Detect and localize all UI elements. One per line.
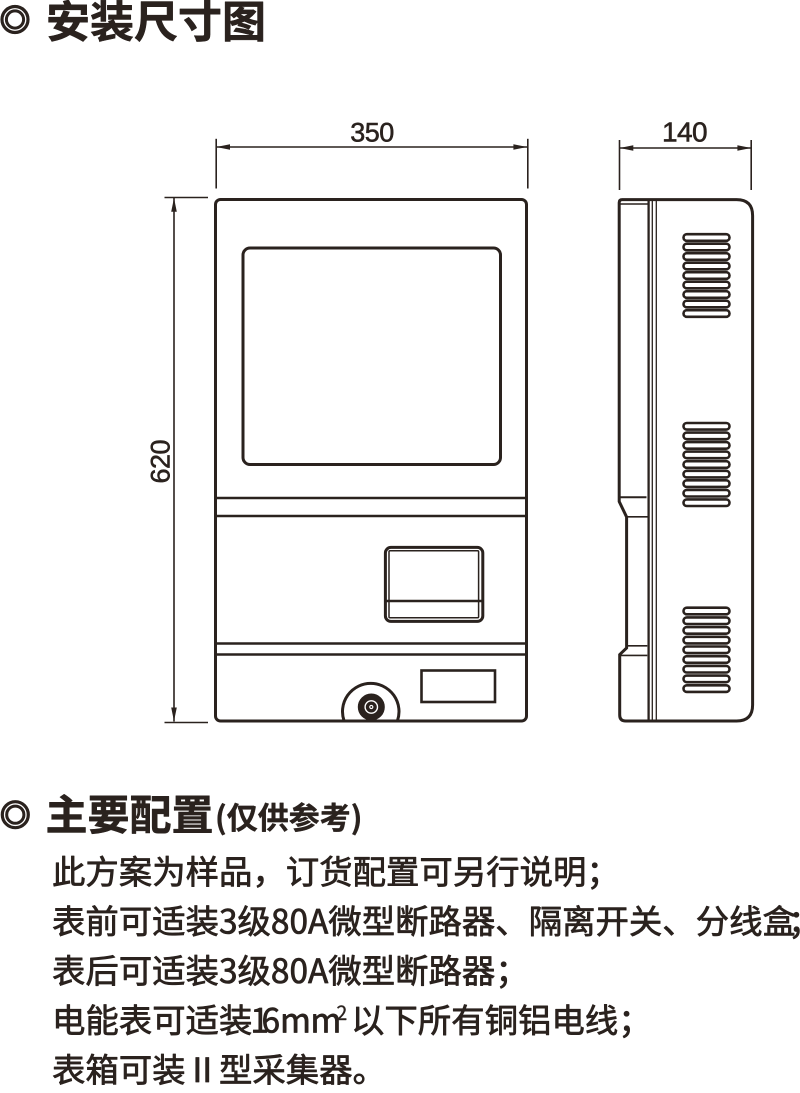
svg-text:140: 140: [662, 117, 707, 148]
svg-text:620: 620: [146, 440, 176, 484]
svg-text:350: 350: [350, 118, 394, 148]
